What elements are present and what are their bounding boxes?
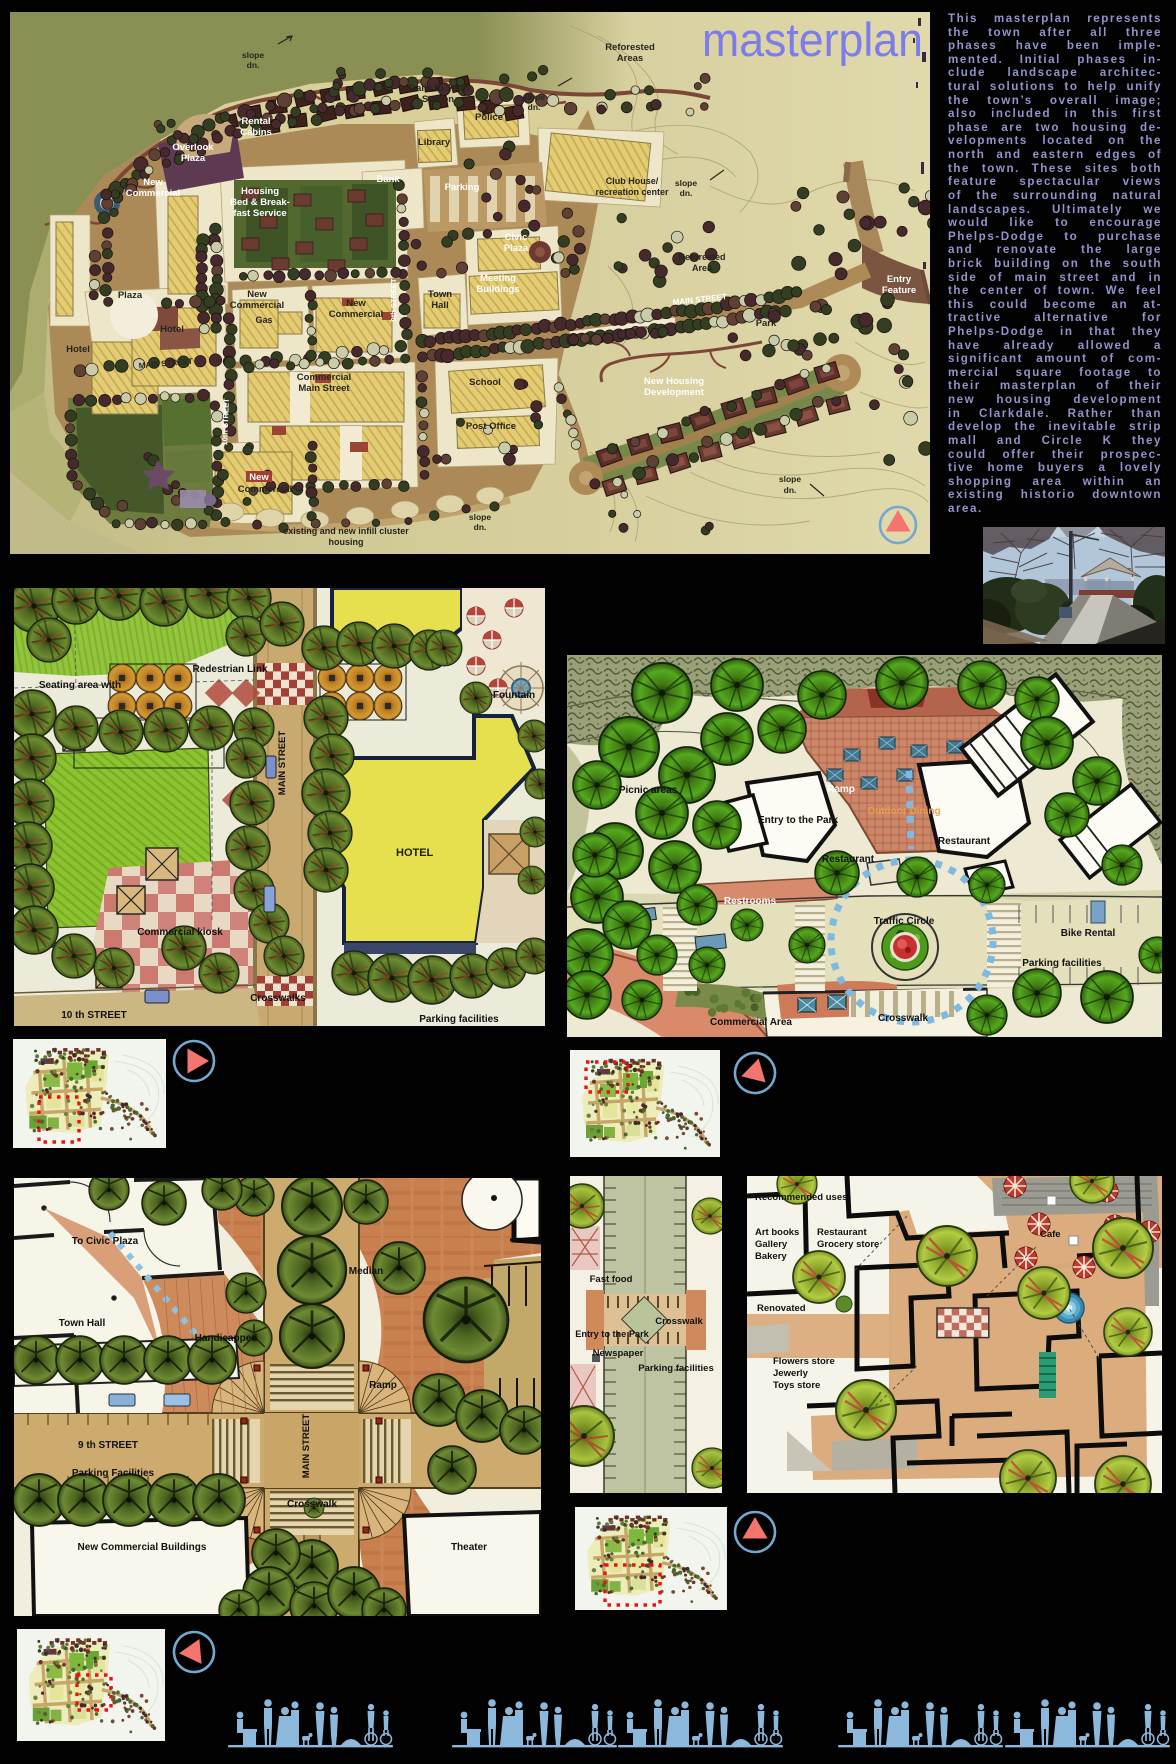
svg-text:Main Street: Main Street <box>298 383 350 394</box>
svg-text:Hotel: Hotel <box>66 344 90 355</box>
svg-text:Areas: Areas <box>617 53 643 64</box>
svg-text:Police: Police <box>475 112 503 123</box>
svg-text:Civic: Civic <box>505 232 528 243</box>
svg-text:Park: Park <box>756 318 777 329</box>
svg-text:housing: housing <box>329 537 364 547</box>
svg-text:Parking facilities: Parking facilities <box>419 1014 499 1025</box>
svg-text:Median: Median <box>349 1266 383 1277</box>
svg-text:Toys store: Toys store <box>773 1380 820 1391</box>
svg-text:Parking: Parking <box>445 182 480 193</box>
svg-text:Gas: Gas <box>255 315 272 325</box>
svg-text:Parking facilities: Parking facilities <box>638 1363 714 1374</box>
svg-text:Jewerly: Jewerly <box>773 1368 809 1379</box>
svg-text:recreation center: recreation center <box>595 187 669 197</box>
svg-text:Library: Library <box>418 137 451 148</box>
svg-text:Restaurant: Restaurant <box>938 836 991 847</box>
svg-text:Station: Station <box>422 94 454 105</box>
svg-text:Ramp: Ramp <box>369 1380 397 1391</box>
svg-text:Hall: Hall <box>431 300 448 311</box>
svg-text:Traffic Circle: Traffic Circle <box>874 916 935 927</box>
svg-text:slope: slope <box>523 92 545 102</box>
svg-text:Flowers store: Flowers store <box>773 1356 835 1367</box>
svg-text:Commercial Area: Commercial Area <box>710 1017 792 1028</box>
svg-text:MAIN STREET: MAIN STREET <box>301 1414 312 1479</box>
svg-text:Housing: Housing <box>241 186 279 197</box>
svg-text:Recommended uses: Recommended uses <box>755 1192 847 1203</box>
svg-text:Cafe: Cafe <box>1040 1229 1061 1240</box>
svg-text:Entry to the Park: Entry to the Park <box>575 1329 649 1339</box>
svg-text:Overlook: Overlook <box>172 142 214 153</box>
svg-text:HOTEL: HOTEL <box>396 847 434 859</box>
svg-text:Club House/: Club House/ <box>606 176 659 186</box>
svg-text:Reforested: Reforested <box>605 42 655 53</box>
svg-text:masterplan: masterplan <box>702 14 923 66</box>
svg-text:Crosswalk: Crosswalk <box>655 1316 703 1327</box>
svg-text:Commercial: Commercial <box>329 309 383 320</box>
svg-text:Bike Rental: Bike Rental <box>1061 928 1116 939</box>
svg-text:Plaza: Plaza <box>118 290 143 301</box>
svg-text:Entry to the Park: Entry to the Park <box>758 815 838 826</box>
svg-text:MAIN STREET: MAIN STREET <box>277 731 288 796</box>
svg-text:Picnic areas: Picnic areas <box>619 785 678 796</box>
svg-text:Restrooms: Restrooms <box>724 896 777 907</box>
svg-text:Redestrian Link: Redestrian Link <box>192 664 267 675</box>
svg-text:Newspaper: Newspaper <box>593 1348 644 1359</box>
svg-text:Commercial: Commercial <box>238 484 292 495</box>
svg-text:Bed & Break-: Bed & Break- <box>230 197 290 208</box>
svg-text:New: New <box>346 298 366 309</box>
svg-text:New Housing: New Housing <box>644 376 704 387</box>
svg-text:dn.: dn. <box>528 102 541 112</box>
svg-text:Commercial: Commercial <box>297 372 351 383</box>
svg-text:dn.: dn. <box>784 485 797 495</box>
svg-text:Plaza: Plaza <box>181 153 206 164</box>
svg-text:Handicapped: Handicapped <box>195 1333 258 1344</box>
svg-text:10th STREET: 10th STREET <box>220 398 231 446</box>
svg-text:Theater: Theater <box>451 1542 487 1553</box>
svg-text:Trails to Train: Trails to Train <box>407 83 469 94</box>
svg-text:New: New <box>249 472 269 483</box>
svg-text:Seating area with: Seating area with <box>39 680 121 691</box>
svg-text:Restaurant: Restaurant <box>822 854 875 865</box>
svg-text:Feature: Feature <box>882 285 916 296</box>
svg-text:To Civic Plaza: To Civic Plaza <box>72 1236 139 1247</box>
svg-text:Crosswalks: Crosswalks <box>250 993 306 1004</box>
svg-text:dn.: dn. <box>474 522 487 532</box>
svg-text:Development: Development <box>644 387 704 398</box>
svg-text:New: New <box>247 289 267 300</box>
svg-text:slope: slope <box>675 178 697 188</box>
svg-text:existing and new infill cluste: existing and new infill cluster <box>283 526 409 536</box>
svg-text:New: New <box>143 177 163 188</box>
svg-text:Parking facilities: Parking facilities <box>1022 958 1102 969</box>
svg-text:9 th STREET: 9 th STREET <box>78 1440 138 1451</box>
svg-text:Buildings: Buildings <box>476 284 519 295</box>
svg-text:Meeting: Meeting <box>480 273 516 284</box>
svg-text:Ramp: Ramp <box>827 784 855 795</box>
svg-text:Crosswalk: Crosswalk <box>878 1013 928 1024</box>
svg-text:Art books: Art books <box>755 1227 799 1238</box>
svg-text:Outdoor Dining: Outdoor Dining <box>867 806 940 817</box>
svg-text:Fountain: Fountain <box>493 690 535 701</box>
svg-text:Cabins: Cabins <box>240 127 272 138</box>
svg-text:Plaza: Plaza <box>504 243 529 254</box>
svg-text:New Commercial Buildings: New Commercial Buildings <box>78 1542 207 1553</box>
svg-text:Bakery: Bakery <box>755 1251 787 1262</box>
svg-text:dn.: dn. <box>247 60 260 70</box>
svg-text:fast Service: fast Service <box>233 208 286 219</box>
svg-text:Grocery store: Grocery store <box>817 1239 879 1250</box>
svg-text:slope: slope <box>469 512 491 522</box>
svg-text:Reforested: Reforested <box>678 252 725 262</box>
svg-text:10 th STREET: 10 th STREET <box>61 1010 127 1021</box>
svg-text:slope: slope <box>242 50 264 60</box>
svg-text:slope: slope <box>779 474 801 484</box>
svg-text:Rental: Rental <box>241 116 270 127</box>
svg-text:School: School <box>469 377 501 388</box>
svg-text:Commercial kiosk: Commercial kiosk <box>137 927 223 938</box>
svg-text:Town Hall: Town Hall <box>59 1318 106 1329</box>
svg-text:dn.: dn. <box>680 188 693 198</box>
svg-text:Restaurant: Restaurant <box>817 1227 867 1238</box>
svg-text:9th STREET: 9th STREET <box>389 278 398 321</box>
svg-text:Bank: Bank <box>376 174 400 185</box>
svg-text:Crosswalk: Crosswalk <box>287 1499 337 1510</box>
svg-text:Fast food: Fast food <box>590 1274 633 1285</box>
svg-text:Area: Area <box>692 263 713 273</box>
svg-text:Commercial: Commercial <box>126 188 180 199</box>
svg-text:Entry: Entry <box>887 274 912 285</box>
svg-text:Renovated: Renovated <box>757 1303 806 1314</box>
svg-text:Town: Town <box>428 289 452 300</box>
svg-text:Commercial: Commercial <box>230 300 284 311</box>
svg-text:Gallery: Gallery <box>755 1239 788 1250</box>
svg-text:Parking Facilities: Parking Facilities <box>72 1468 155 1479</box>
svg-text:Hotel: Hotel <box>160 324 184 335</box>
svg-text:Post Office: Post Office <box>466 421 516 432</box>
